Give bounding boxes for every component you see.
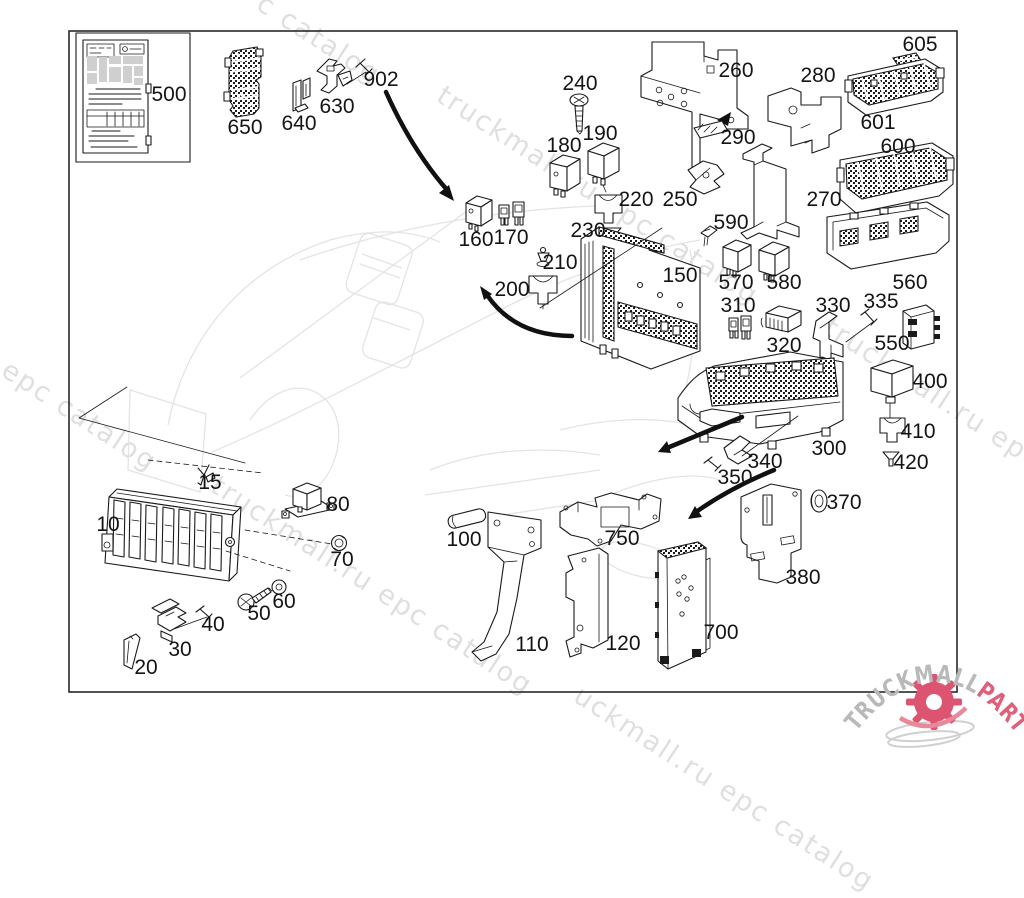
callout-270-mounting-bracket[interactable]: 270 [806, 188, 841, 212]
callout-750-mounting-frame[interactable]: 750 [604, 527, 639, 551]
callout-170-fuse-links[interactable]: 170 [493, 226, 528, 250]
callout-640-retaining-clip[interactable]: 640 [281, 112, 316, 136]
part-400-relay[interactable] [871, 360, 913, 418]
callout-220-connector-sleeve[interactable]: 220 [618, 188, 653, 212]
part-560-fuse-box-tray[interactable] [827, 202, 949, 269]
callout-290-cover-strip[interactable]: 290 [720, 126, 755, 150]
callout-240-screw[interactable]: 240 [562, 72, 597, 96]
part-700-mounting-panel[interactable] [655, 542, 710, 669]
callout-280-bracket-plate[interactable]: 280 [800, 64, 835, 88]
part-150-fuse-box-upper[interactable] [581, 227, 700, 369]
callout-600-fuse-strip-module[interactable]: 600 [880, 135, 915, 159]
callout-100-pin[interactable]: 100 [446, 528, 481, 552]
callout-580-relay[interactable]: 580 [766, 271, 801, 295]
callout-550-connector[interactable]: 550 [874, 332, 909, 356]
part-160-relay[interactable] [466, 196, 492, 231]
callout-902-screw[interactable]: 902 [363, 68, 398, 92]
callout-330-bracket[interactable]: 330 [815, 294, 850, 318]
callout-180-relay[interactable]: 180 [546, 134, 581, 158]
callout-250-bracket[interactable]: 250 [662, 188, 697, 212]
callout-340-bracket[interactable]: 340 [747, 450, 782, 474]
callout-30-bracket[interactable]: 30 [168, 638, 191, 662]
callout-40-rivet-pin[interactable]: 40 [201, 613, 224, 637]
callout-300-fuse-box-lower[interactable]: 300 [811, 437, 846, 461]
part-170-fuse-links[interactable] [499, 202, 524, 225]
callout-60-washer[interactable]: 60 [272, 590, 295, 614]
part-640-retaining-clip[interactable] [293, 78, 310, 112]
callout-590-clip[interactable]: 590 [713, 211, 748, 235]
callout-110-support-bracket[interactable]: 110 [515, 633, 548, 657]
part-601-fuse-strip-module[interactable] [845, 59, 944, 115]
callout-320-connector-housing[interactable]: 320 [766, 334, 801, 358]
callout-650-fuse-module-stack[interactable]: 650 [227, 116, 262, 140]
part-370-grommet[interactable] [811, 490, 827, 512]
part-120-bracket[interactable] [566, 548, 608, 657]
callout-380-mounting-plate[interactable]: 380 [785, 566, 820, 590]
callout-570-relay[interactable]: 570 [718, 271, 753, 295]
part-200-connector-sleeve[interactable] [529, 276, 557, 309]
callout-80-relay-with-bracket[interactable]: 80 [326, 493, 349, 517]
callout-50-screw[interactable]: 50 [247, 602, 270, 626]
callout-20-plate[interactable]: 20 [134, 656, 157, 680]
callout-500-data-label-sticker[interactable]: 500 [151, 83, 186, 107]
part-630-mounting-clip[interactable] [317, 59, 352, 93]
callout-120-bracket[interactable]: 120 [605, 632, 640, 656]
callout-630-mounting-clip[interactable]: 630 [319, 95, 354, 119]
part-310-fuse-links[interactable] [729, 316, 751, 339]
callout-335-screw[interactable]: 335 [863, 290, 898, 314]
callout-310-fuse-links[interactable]: 310 [720, 294, 755, 318]
callout-605-cover-strip[interactable]: 605 [902, 33, 937, 57]
part-280-bracket-plate[interactable] [768, 88, 841, 153]
callout-160-relay[interactable]: 160 [458, 228, 493, 252]
part-30-bracket[interactable] [152, 599, 186, 642]
part-320-connector-housing[interactable] [761, 306, 801, 332]
part-10-relay-carrier[interactable] [102, 489, 241, 581]
callout-350-screw[interactable]: 350 [717, 466, 752, 490]
callout-190-relay[interactable]: 190 [582, 122, 617, 146]
callout-410-connector-sleeve[interactable]: 410 [900, 420, 935, 444]
callout-700-mounting-panel[interactable]: 700 [703, 621, 738, 645]
callout-230-grommet-cone[interactable]: 230 [570, 219, 605, 243]
callout-370-grommet[interactable]: 370 [826, 491, 861, 515]
callout-70-nut[interactable]: 70 [330, 548, 353, 572]
part-100-pin[interactable] [447, 508, 487, 530]
callout-15-clip[interactable]: 15 [198, 471, 221, 495]
callout-260-mounting-bracket[interactable]: 260 [718, 59, 753, 83]
callout-10-relay-carrier[interactable]: 10 [96, 513, 119, 537]
callout-150-fuse-box-upper[interactable]: 150 [662, 264, 697, 288]
callout-200-connector-sleeve[interactable]: 200 [494, 278, 529, 302]
callout-420-grommet-cone[interactable]: 420 [893, 451, 928, 475]
part-270-mounting-bracket[interactable] [741, 144, 799, 239]
part-500-label-sticker[interactable] [83, 40, 151, 153]
part-650-fuse-module-stack[interactable] [224, 47, 263, 117]
part-190-relay[interactable] [588, 143, 619, 192]
diagram-page: { "diagram": { "kind": "exploded-parts-d… [0, 0, 1024, 750]
callout-210-grommet-cone[interactable]: 210 [542, 251, 577, 275]
part-180-relay[interactable] [550, 155, 580, 197]
callout-400-relay[interactable]: 400 [912, 370, 947, 394]
callout-601-fuse-strip-module[interactable]: 601 [860, 111, 895, 135]
